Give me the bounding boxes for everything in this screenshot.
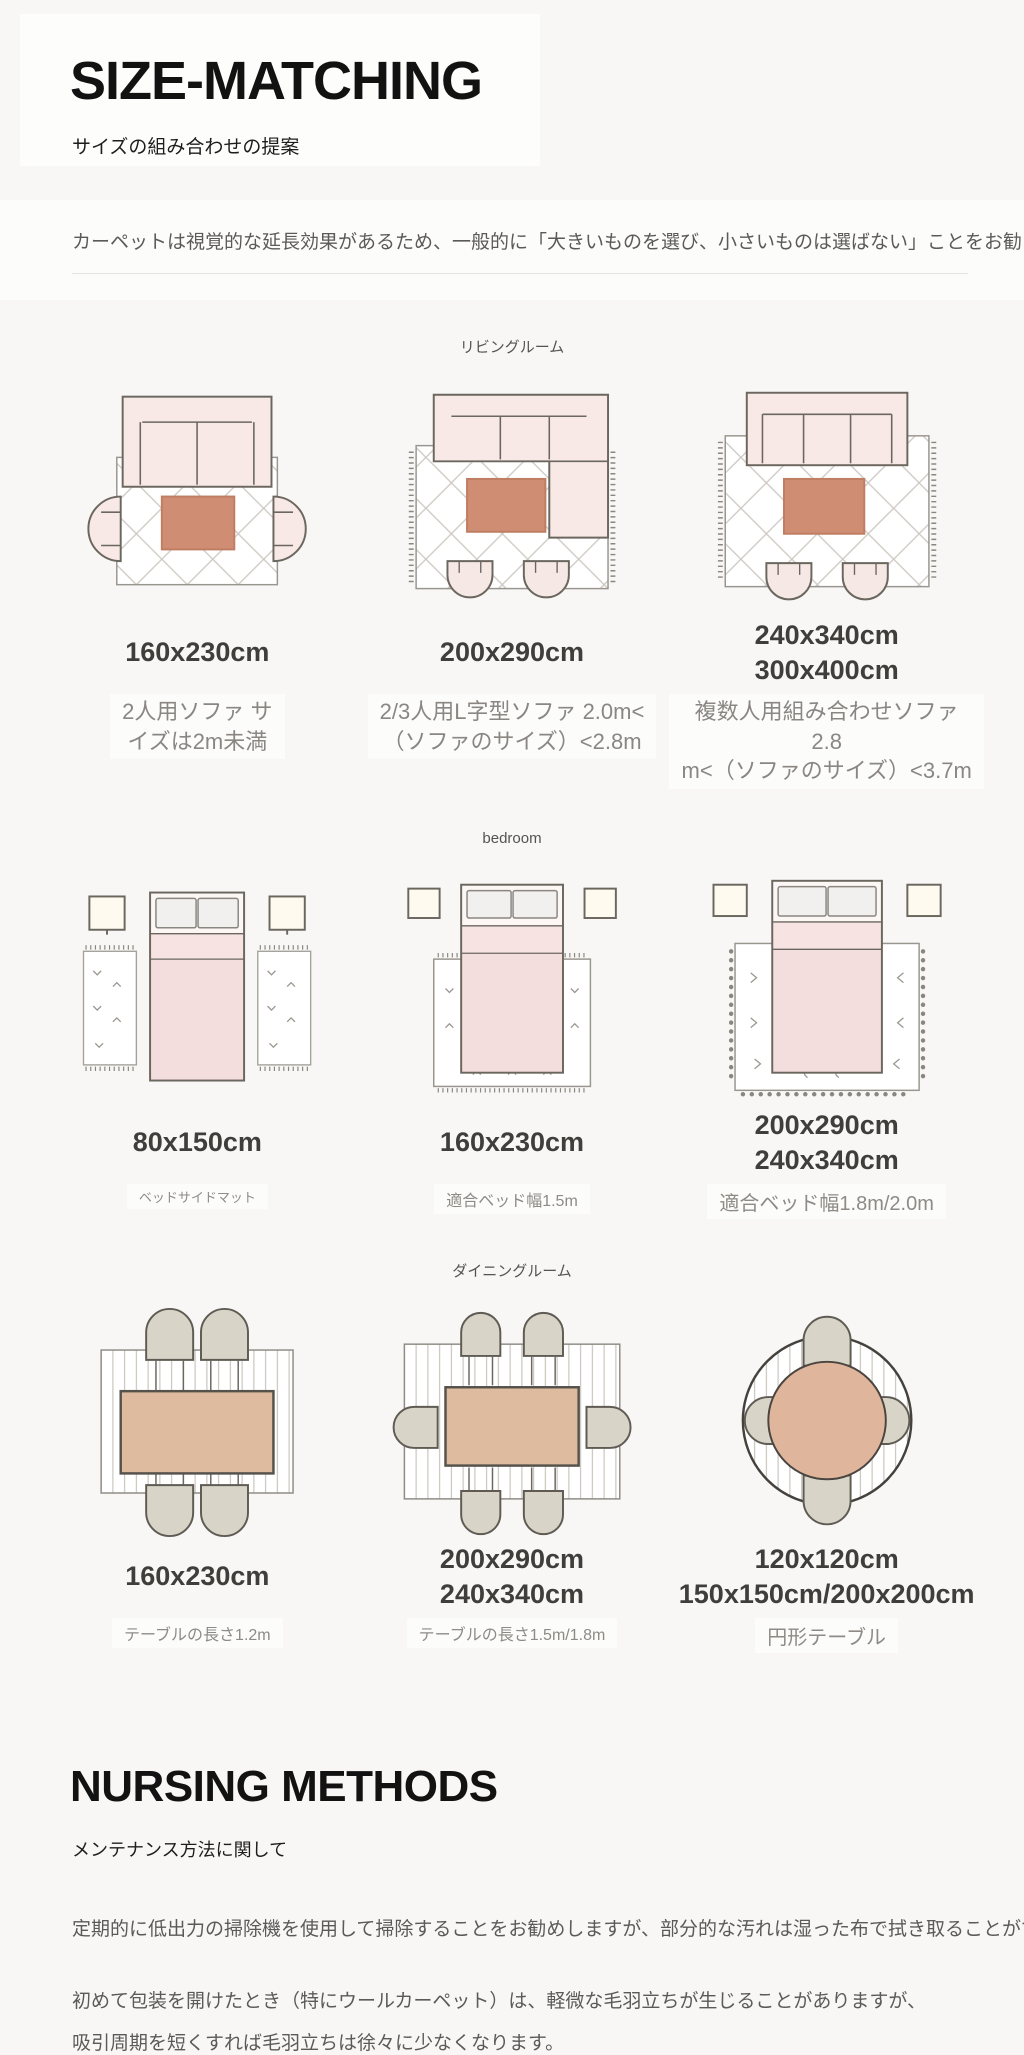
- size-option-dining-1: 160x230cm テーブルの長さ1.2m: [40, 1305, 355, 1653]
- round-table-four-chairs-illustration: [690, 1305, 964, 1540]
- page-subtitle: サイズの組み合わせの提案: [72, 132, 299, 159]
- size-option-bedroom-3: 200x290cm 240x340cm 適合ベッド幅1.8m/2.0m: [669, 871, 984, 1219]
- size-description: 2人用ソファ サ イズは2m未満: [110, 694, 284, 759]
- size-label: 120x120cm 150x150cm/200x200cm: [679, 1540, 975, 1614]
- size-option-living-2: 200x290cm 2/3人用L字型ソファ 2.0m< （ソファのサイズ）<2.…: [355, 381, 670, 789]
- two-seater-sofa-rug-illustration: [60, 381, 334, 616]
- section-bedroom: bedroom: [40, 830, 984, 1219]
- size-description: ベッドサイドマット: [127, 1184, 268, 1209]
- section-label-bedroom: bedroom: [40, 830, 984, 847]
- care-subtitle: メンテナンス方法に関して: [72, 1836, 287, 1862]
- combination-sofa-rug-illustration: [690, 381, 964, 616]
- section-label-dining-room: ダイニングルーム: [40, 1260, 984, 1281]
- size-label: 200x290cm 240x340cm: [755, 1106, 899, 1180]
- size-description: テーブルの長さ1.5m/1.8m: [407, 1618, 618, 1648]
- size-option-living-1: 160x230cm 2人用ソファ サ イズは2m未満: [40, 381, 355, 789]
- divider-line: [72, 273, 968, 274]
- care-paragraph-3: 吸引周期を短くすれば毛羽立ちは徐々に少なくなります。: [72, 2028, 1024, 2055]
- size-option-bedroom-1: 80x150cm ベッドサイドマット: [40, 871, 355, 1219]
- bed-with-bedside-mats-illustration: [60, 871, 334, 1106]
- size-label: 160x230cm: [125, 1540, 269, 1614]
- l-shaped-sofa-rug-illustration: [375, 381, 649, 616]
- size-description: 適合ベッド幅1.5m: [434, 1184, 590, 1214]
- bed-on-rug-illustration: [375, 871, 649, 1106]
- size-description: テーブルの長さ1.2m: [112, 1618, 283, 1648]
- intro-text: カーペットは視覚的な延長効果があるため、一般的に「大きいものを選び、小さいものは…: [72, 227, 1024, 254]
- page-title: SIZE-MATCHING: [70, 50, 482, 112]
- size-description: 円形テーブル: [755, 1618, 898, 1653]
- size-label: 80x150cm: [133, 1106, 262, 1180]
- size-label: 240x340cm 300x400cm: [755, 616, 899, 690]
- dining-table-six-chairs-illustration: [375, 1305, 649, 1540]
- size-option-bedroom-2: 160x230cm 適合ベッド幅1.5m: [355, 871, 670, 1219]
- section-living-room: リビングルーム 160x230cm: [40, 336, 984, 789]
- size-label: 160x230cm: [125, 616, 269, 690]
- care-paragraph-2: 初めて包装を開けたとき（特にウールカーペット）は、軽微な毛羽立ちが生じることがあ…: [72, 1986, 1024, 2013]
- section-label-living-room: リビングルーム: [40, 336, 984, 357]
- section-dining-room: ダイニングルーム 160x230cm: [40, 1260, 984, 1653]
- size-description: 2/3人用L字型ソファ 2.0m< （ソファのサイズ）<2.8m: [368, 694, 657, 759]
- size-label: 200x290cm: [440, 616, 584, 690]
- bed-on-large-rug-illustration: [690, 871, 964, 1106]
- size-option-dining-3: 120x120cm 150x150cm/200x200cm 円形テーブル: [669, 1305, 984, 1653]
- dining-table-four-chairs-illustration: [60, 1305, 334, 1540]
- size-option-dining-2: 200x290cm 240x340cm テーブルの長さ1.5m/1.8m: [355, 1305, 670, 1653]
- size-label: 160x230cm: [440, 1106, 584, 1180]
- care-title: NURSING METHODS: [70, 1762, 498, 1812]
- size-description: 適合ベッド幅1.8m/2.0m: [707, 1184, 945, 1219]
- care-paragraph-1: 定期的に低出力の掃除機を使用して掃除することをお勧めしますが、部分的な汚れは湿っ…: [72, 1914, 1024, 1941]
- size-label: 200x290cm 240x340cm: [440, 1540, 584, 1614]
- size-option-living-3: 240x340cm 300x400cm 複数人用組み合わせソファ 2.8 m<（…: [669, 381, 984, 789]
- size-description: 複数人用組み合わせソファ 2.8 m<（ソファのサイズ）<3.7m: [669, 694, 984, 789]
